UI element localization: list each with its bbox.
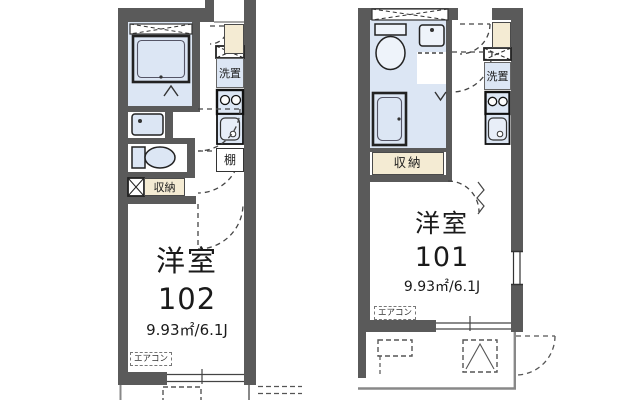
- u101-terrace-gate-swing: [516, 336, 555, 375]
- u102-balcony: [121, 385, 303, 400]
- u101-terrace-ac-unit: [378, 340, 412, 356]
- u101-toilet: [375, 24, 406, 70]
- u101-side-window: [511, 251, 523, 285]
- u102-side-fence: [258, 387, 302, 394]
- u102-balcony-ac-unit: [163, 387, 201, 400]
- u101-washer-label: 洗置: [487, 71, 509, 82]
- u101-terrace-window: [436, 316, 511, 332]
- u102-bathroom: [128, 22, 192, 106]
- u102-bath-window-hatch: [130, 24, 192, 34]
- u102-bathtub: [133, 36, 189, 82]
- u101-kitchen-sink: [486, 114, 510, 144]
- u101-aircon: エアコン: [374, 306, 416, 320]
- u102-shelf: 棚: [216, 148, 244, 172]
- u102-storage: 収納: [144, 178, 185, 196]
- u102-washer-label: 洗置: [219, 68, 241, 79]
- u101-room-number: 101: [372, 242, 512, 273]
- u102-room-number: 102: [122, 282, 252, 316]
- floor-plan-canvas: 洗置 棚 収納 エアコン 洋室 102 9.93㎡/6.1J 洗置 収納 エアコ…: [0, 0, 640, 400]
- u102-washer-space: 洗置: [216, 58, 244, 88]
- plan-linework: [0, 0, 640, 400]
- u101-storage: 収納: [372, 152, 444, 175]
- u101-terrace: [358, 332, 555, 389]
- u101-washer-space: 洗置: [484, 62, 511, 90]
- u101-top-window-hatch: [372, 9, 448, 20]
- u101-washbasin: [420, 25, 445, 46]
- u101-room-title: 洋室 101 9.93㎡/6.1J: [372, 204, 512, 296]
- u101-bathtub: [373, 93, 406, 145]
- u102-pipe-space: [128, 178, 144, 196]
- u101-room-type: 洋室: [372, 204, 512, 240]
- u102-stove: [217, 90, 243, 114]
- u102-room-type: 洋室: [122, 238, 252, 280]
- u101-room-area: 9.93㎡/6.1J: [372, 276, 512, 296]
- u102-room-window: [167, 369, 244, 385]
- u102-washbasin: [132, 114, 163, 135]
- u101-vent-box: [484, 48, 511, 60]
- u102-room-area: 9.93㎡/6.1J: [122, 319, 252, 340]
- u101-aircon-label: エアコン: [378, 309, 412, 318]
- u102-aircon-label: エアコン: [134, 355, 168, 364]
- u101-shoe-cabinet: [492, 22, 511, 48]
- u102-shelf-label: 棚: [224, 154, 236, 166]
- u102-shoe-cabinet: [224, 24, 244, 54]
- u102-room-title: 洋室 102 9.93㎡/6.1J: [122, 238, 252, 340]
- u102-storage-label: 収納: [154, 182, 176, 193]
- u102-toilet: [132, 147, 175, 168]
- u101-storage-label: 収納: [393, 157, 422, 170]
- u102-aircon: エアコン: [130, 352, 172, 366]
- u101-terrace-storage-box: [463, 340, 497, 372]
- u101-stove: [486, 92, 510, 114]
